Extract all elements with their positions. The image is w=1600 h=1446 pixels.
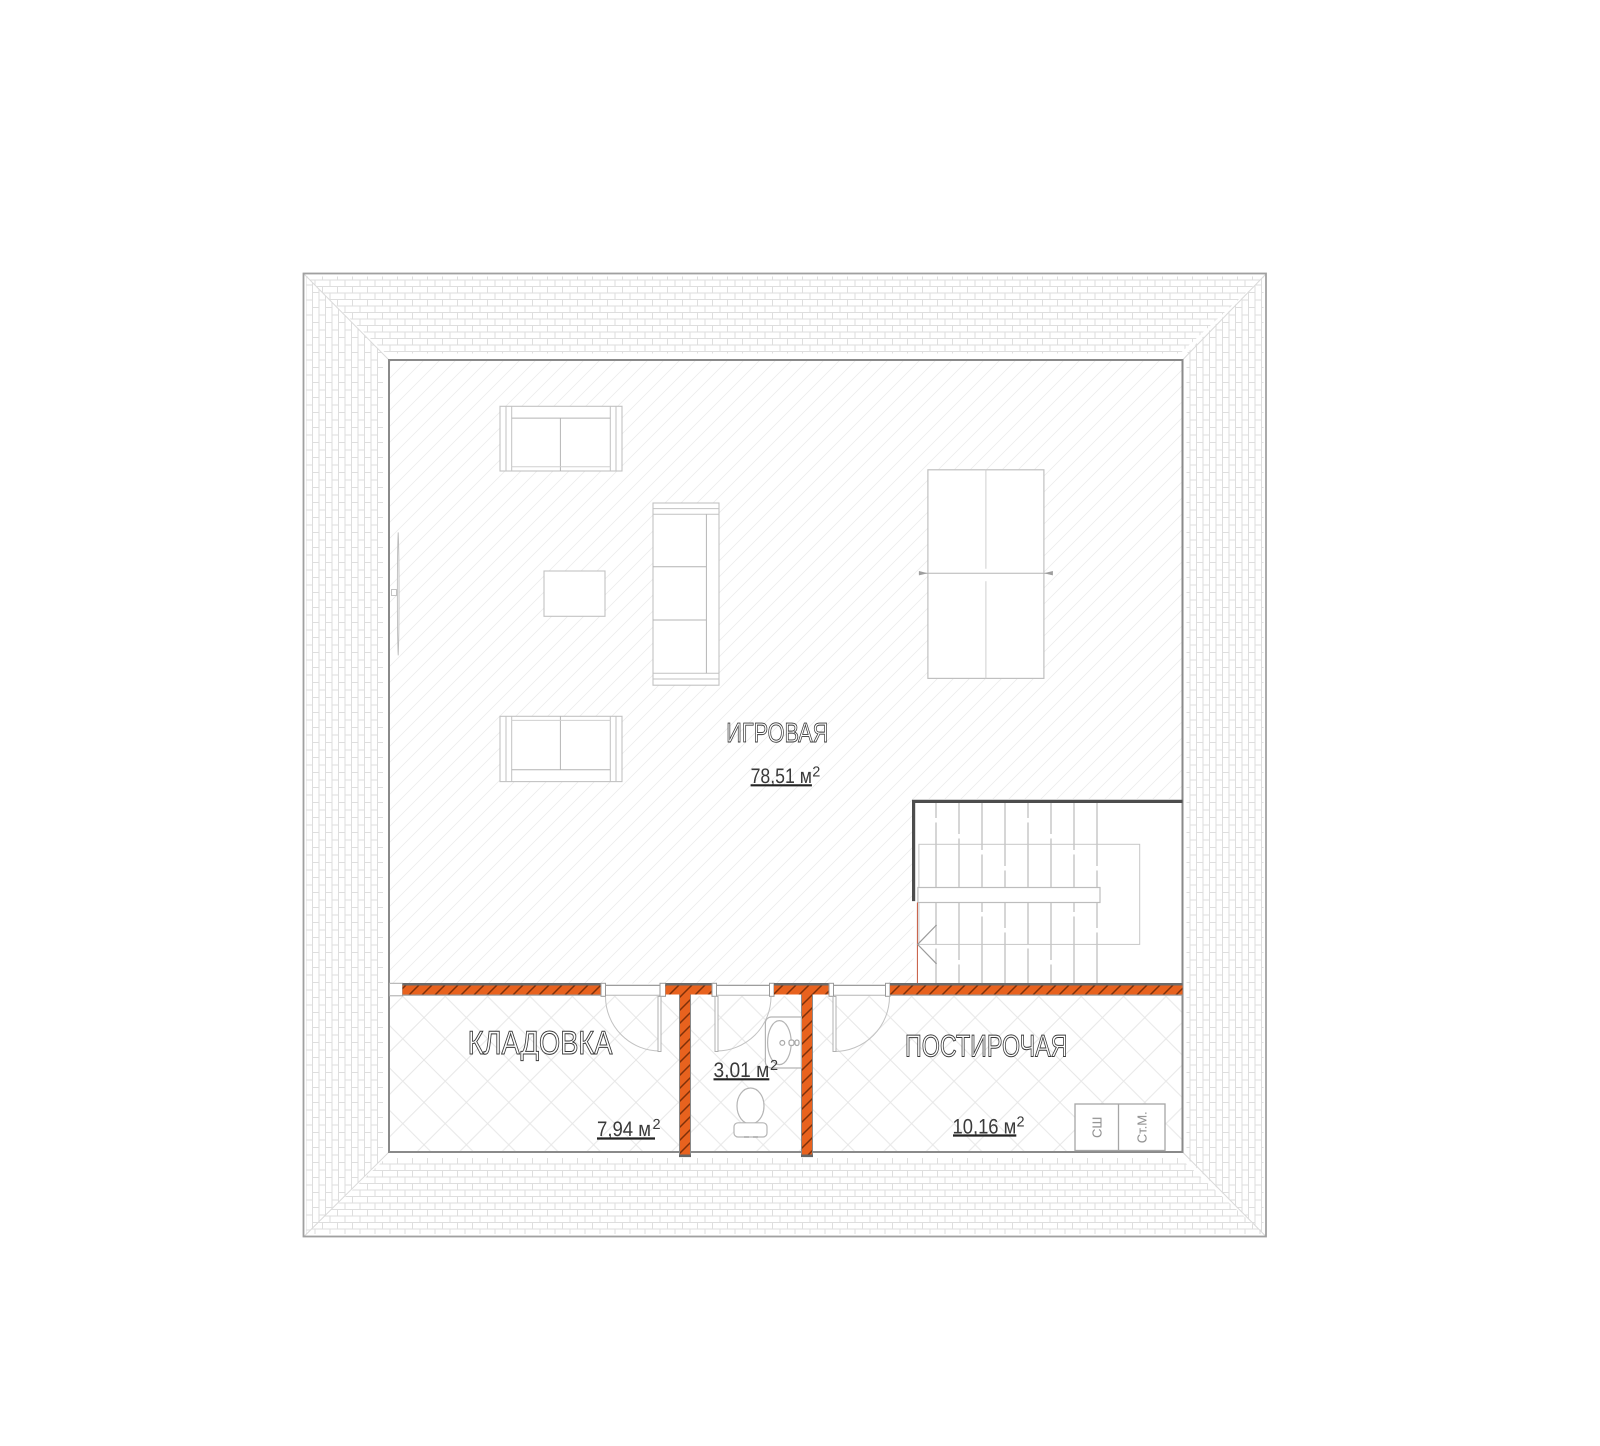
- svg-text:Ст.М.: Ст.М.: [1134, 1111, 1149, 1143]
- svg-text:2: 2: [653, 1117, 661, 1133]
- svg-text:ПОСТИРОЧАЯ: ПОСТИРОЧАЯ: [905, 1028, 1068, 1063]
- svg-text:СШ: СШ: [1089, 1117, 1104, 1138]
- svg-text:2: 2: [812, 765, 820, 781]
- svg-text:КЛАДОВКА: КЛАДОВКА: [468, 1024, 613, 1061]
- svg-text:2: 2: [770, 1058, 778, 1074]
- svg-text:2: 2: [1017, 1114, 1025, 1130]
- svg-text:ИГРОВАЯ: ИГРОВАЯ: [726, 717, 828, 748]
